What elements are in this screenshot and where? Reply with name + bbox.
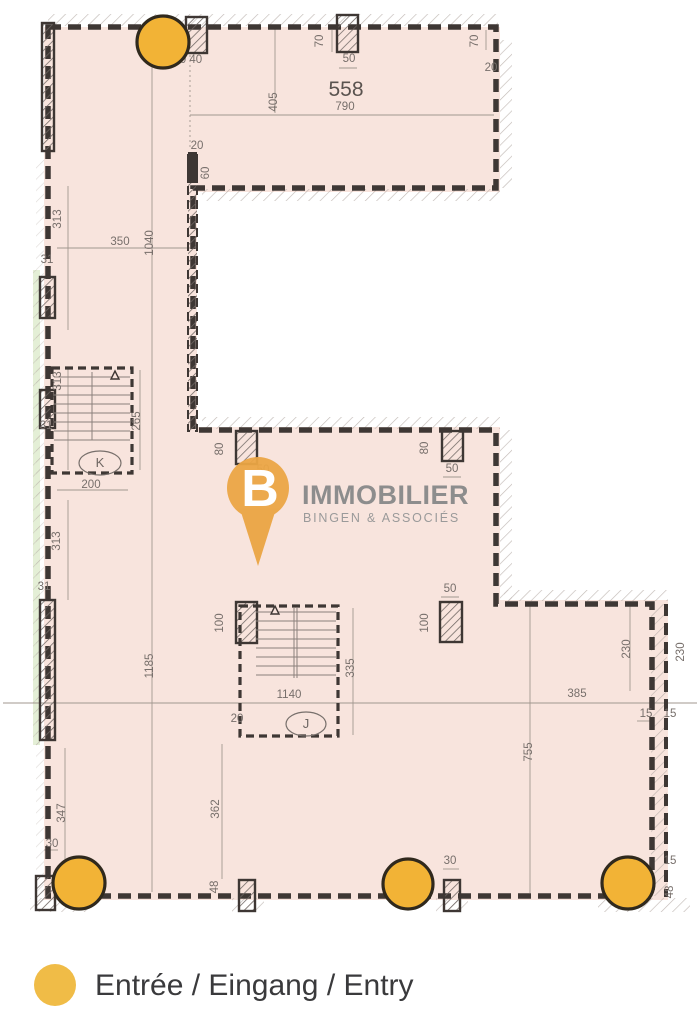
dim-label: 80 <box>419 442 431 455</box>
dim-label: 313 <box>51 531 63 550</box>
dim-label: 70 <box>314 35 326 48</box>
logo-name: IMMOBILIER <box>302 480 469 510</box>
entrance-marker <box>602 857 654 909</box>
logo-subtitle: BINGEN & ASSOCIÉS <box>303 510 460 525</box>
dim-label: 362 <box>210 799 222 818</box>
dim-label: 48 <box>664 886 676 899</box>
dim-label: 200 <box>81 479 100 491</box>
floorplan-svg: K J 70 50 558 790 405 70 20 0 40 20 60 3… <box>0 0 700 1023</box>
dim-label: 347 <box>56 803 68 822</box>
dim-label: 15 <box>664 708 677 720</box>
dim-label: 1040 <box>144 230 156 256</box>
dim-label: 335 <box>345 658 357 677</box>
dim-label: 1140 <box>277 689 302 701</box>
dim-label: 313 <box>52 209 64 228</box>
dim-label: 100 <box>214 613 226 632</box>
floor-area <box>44 27 668 900</box>
dim-label: 755 <box>523 742 535 761</box>
dim-label: 1185 <box>144 654 156 679</box>
dim-label: 385 <box>567 688 586 700</box>
dim-label: 230 <box>675 642 687 661</box>
dim-label: 313 <box>52 371 64 390</box>
dim-label: 50 <box>343 53 356 65</box>
dim-label: 20 <box>485 62 498 74</box>
dim-label: 20 <box>231 713 244 725</box>
dim-label: 48 <box>209 881 221 894</box>
dim-label: 80 <box>214 443 226 456</box>
dim-label: 405 <box>268 92 280 111</box>
stair-j-label: J <box>303 716 310 731</box>
dim-label: 31 <box>41 254 54 266</box>
dim-label: 15 <box>640 708 653 720</box>
dim-label: 31 <box>38 581 51 593</box>
dim-label: 30 <box>444 855 457 867</box>
dim-label: 350 <box>110 236 129 248</box>
dim-label: 50 <box>444 583 457 595</box>
floorplan-image: K J 70 50 558 790 405 70 20 0 40 20 60 3… <box>0 0 700 1023</box>
dim-label: 100 <box>419 613 431 632</box>
legend: Entrée / Eingang / Entry <box>34 964 414 1006</box>
logo-letter: B <box>241 460 279 518</box>
legend-label: Entrée / Eingang / Entry <box>95 969 414 1002</box>
dim-label: 230 <box>621 639 633 658</box>
dim-label: 31 <box>40 420 53 432</box>
dim-label: 50 <box>446 463 459 475</box>
dim-label: 265 <box>131 411 143 430</box>
entrance-marker <box>53 857 105 909</box>
entrance-marker <box>383 859 433 909</box>
dim-label: 30 <box>46 838 59 850</box>
stair-k-label: K <box>96 455 105 470</box>
dim-label: 20 <box>191 140 204 152</box>
entrance-legend-icon <box>34 964 76 1006</box>
room-area-label: 558 <box>328 78 363 101</box>
dim-label: 790 <box>335 101 354 113</box>
dim-label: 70 <box>469 35 481 48</box>
dim-label: 15 <box>664 855 677 867</box>
dim-label: 60 <box>200 167 212 180</box>
entrance-marker <box>137 16 189 68</box>
inner-wall <box>187 153 198 431</box>
